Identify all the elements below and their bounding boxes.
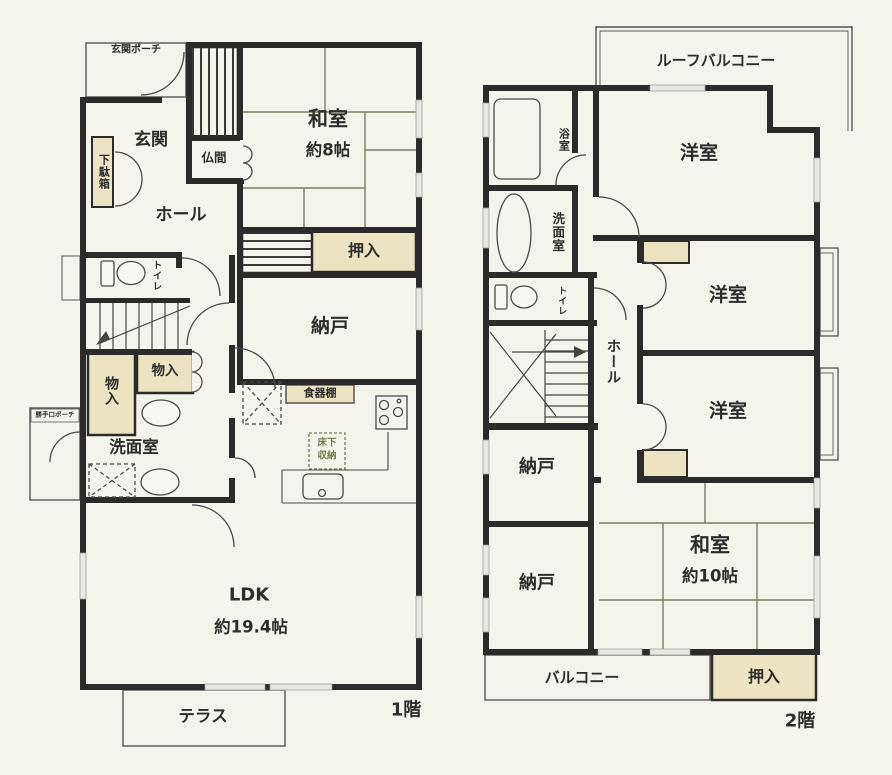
bathtub-icon [494, 99, 540, 179]
stairs-direction-arrow [574, 346, 586, 358]
second-floor-walls [483, 85, 820, 655]
room-label-hall-1f: ホール [156, 206, 207, 226]
floor-label-2f: 2階 [785, 712, 816, 733]
kitchen-counter [282, 432, 416, 503]
room-label-getabako: 下駄箱 [97, 154, 110, 190]
room-label-bath: 浴室 [557, 128, 570, 152]
yoshitsu-b-double-door [643, 262, 666, 308]
room-label-nando-1f: 納戸 [311, 316, 349, 338]
room-label-monoiri-b: 物入 [152, 364, 179, 380]
label-shokkidana: 食器棚 [304, 388, 337, 401]
yoshitsu-c-double-door [643, 404, 666, 450]
kitchen-sink [303, 474, 343, 499]
room-label-katteguchi-porch: 勝手口ポーチ [36, 411, 75, 418]
yoshitsu-a-door-arc [599, 197, 639, 237]
room-label-terrace: テラス [178, 708, 227, 727]
label-yukashita-line2: 収納 [317, 452, 336, 463]
closet-yoshitsu-b [643, 241, 689, 263]
toilet-bowl-1f [117, 262, 145, 285]
tatami-room-8jo-grid [243, 48, 416, 227]
room-label-yoshitsu-c: 洋室 [709, 401, 747, 423]
toilet-tank-1f [101, 261, 114, 286]
room-label-washitsu-2f: 和室 [690, 534, 730, 557]
room-label-yoshitsu-a: 洋室 [680, 143, 718, 165]
room-size-washitsu-2f: 約10帖 [682, 568, 738, 587]
room-label-oshiire-1f: 押入 [348, 242, 380, 260]
room-label-toilet-2f: トイレ [556, 286, 566, 316]
room-label-monoiri-a: 物入 [103, 376, 119, 406]
kitchen-door-arc [235, 458, 255, 478]
room-size-ldk: 約19.4帖 [214, 619, 288, 638]
room-label-yoshitsu-b: 洋室 [709, 285, 747, 307]
floorplan-linework [0, 0, 892, 775]
senmen-door-arc [187, 303, 229, 345]
room-label-toilet-1f: トイレ [150, 260, 161, 292]
floor-label-1f: 1階 [391, 701, 422, 722]
floorplan-image: 玄関ポーチ 玄関 下駄箱 仏間 和室 約8帖 ホール トイレ 押入 納戸 物入 … [0, 0, 892, 775]
bay-window-lower [820, 368, 838, 460]
room-label-senmen-1f: 洗面室 [109, 439, 159, 458]
room-label-roof-balcony: ルーフバルコニー [657, 52, 776, 69]
hatch-block-horizontal [243, 233, 312, 272]
room-label-balcony: バルコニー [545, 669, 620, 686]
ldk-door-arc [192, 505, 234, 547]
room-label-washitsu-1f: 和室 [308, 108, 348, 131]
monoiri-folding-door [192, 352, 202, 392]
stairs-up-arrow [96, 331, 110, 345]
second-floor-windows [483, 85, 820, 655]
toilet-tank-2f [495, 285, 507, 309]
room-label-butsuma: 仏間 [201, 151, 226, 165]
butsuma-folding-door [243, 146, 252, 180]
washbasin-1f [142, 400, 180, 426]
closet-yoshitsu-c [643, 450, 687, 477]
room-label-nando-a: 納戸 [519, 458, 555, 479]
hatch-block-vertical [192, 48, 237, 136]
room-label-hall-2f: ホール [604, 339, 621, 386]
room-label-genkan: 玄関 [134, 131, 168, 151]
toilet-bay-outline [62, 256, 80, 300]
room-label-senmen-2f: 洗面室 [550, 212, 564, 253]
second-floor-closets [643, 241, 816, 700]
toilet-2f-door-arc [594, 288, 626, 320]
genkan-double-door [115, 152, 142, 206]
bath-door-arc [556, 155, 586, 185]
first-floor-stairs [96, 303, 190, 349]
room-label-oshiire-2f: 押入 [748, 668, 780, 686]
room-label-nando-b: 納戸 [519, 574, 555, 595]
room-size-washitsu-1f: 約8帖 [306, 142, 350, 161]
laundry-oval-1f [141, 469, 179, 495]
bay-window-upper [820, 248, 838, 336]
washbasin-2f [497, 194, 531, 272]
room-label-ldk: LDK [229, 586, 269, 607]
label-yukashita-line1: 床下 [317, 439, 336, 450]
room-label-genkan-porch: 玄関ポーチ [111, 44, 161, 56]
roof-balcony-outline [596, 27, 852, 131]
katteguchi-door-arc [50, 432, 80, 462]
porch-door-arc [141, 52, 184, 95]
toilet-bowl-2f [511, 286, 537, 308]
first-floor-closets [88, 137, 416, 435]
toilet-door-arc [182, 258, 220, 296]
second-floor-stairs [490, 330, 588, 423]
